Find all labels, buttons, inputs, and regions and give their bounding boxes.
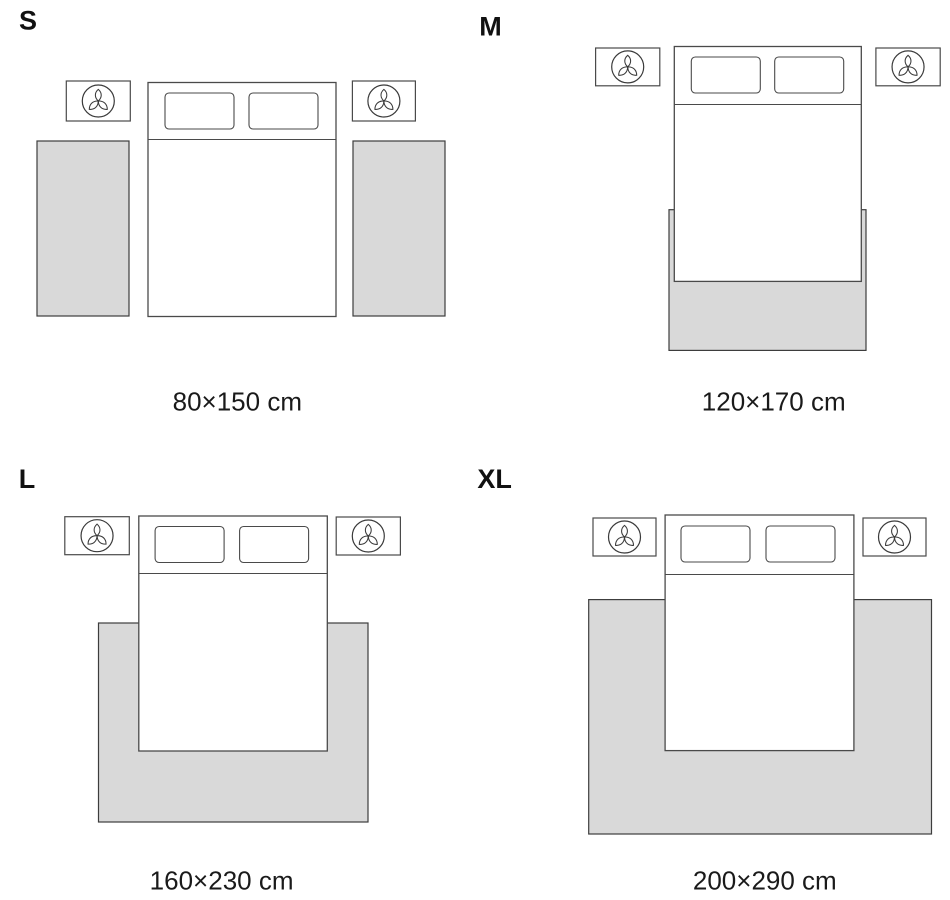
svg-text:120×170 cm: 120×170 cm: [702, 387, 846, 417]
svg-text:200×290 cm: 200×290 cm: [693, 866, 837, 896]
svg-text:L: L: [19, 464, 36, 494]
svg-text:XL: XL: [477, 464, 512, 494]
svg-text:80×150 cm: 80×150 cm: [173, 387, 302, 417]
svg-text:M: M: [479, 11, 502, 41]
svg-text:160×230 cm: 160×230 cm: [150, 866, 294, 896]
svg-text:S: S: [19, 6, 37, 36]
